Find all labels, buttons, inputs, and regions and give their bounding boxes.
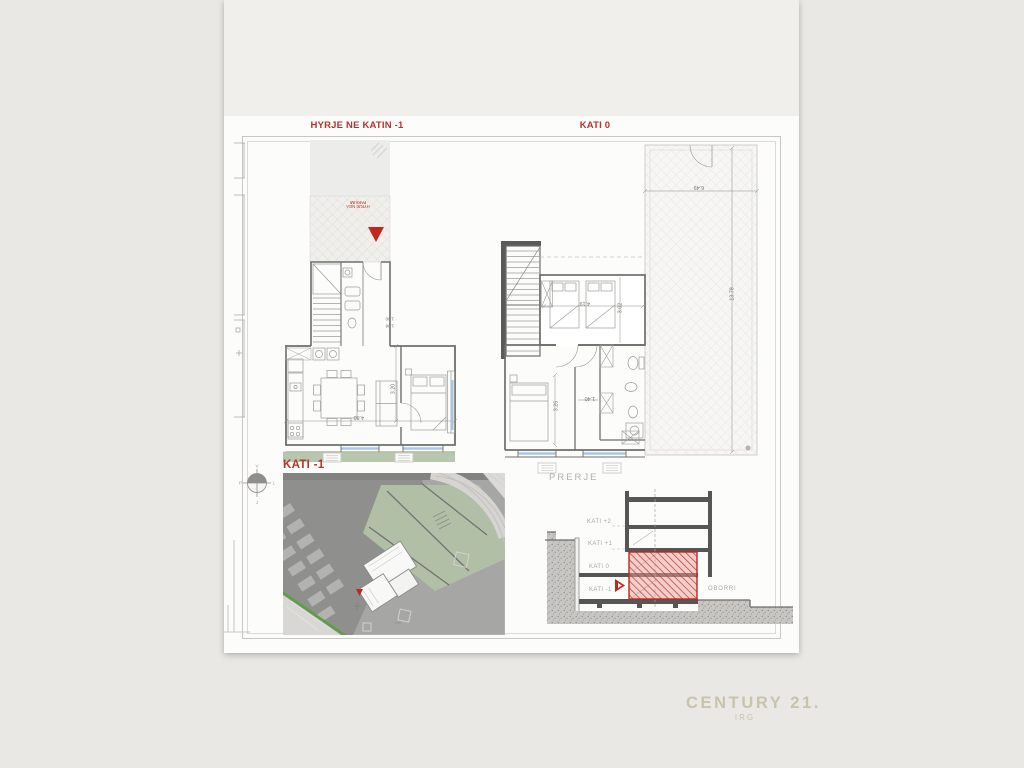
title-ground-floor: KATI 0 (570, 120, 620, 131)
kitchen (288, 359, 303, 439)
laundry-units (313, 348, 339, 360)
highlighted-unit-section (629, 552, 697, 599)
door-arc (363, 262, 381, 280)
dim-left-depth: 3.20 (391, 384, 396, 395)
bed (510, 375, 548, 441)
dim-stair-b: 1.98 (386, 323, 394, 327)
shaft-hatch (600, 345, 639, 444)
drain-icon (746, 446, 751, 451)
compass-icon: V L J P (238, 462, 280, 506)
road-strip (283, 473, 505, 480)
entry-marker-label: HYRJE NGA PARKIMI (343, 199, 373, 208)
terrace (643, 145, 759, 455)
title-basement: KATI -1 (283, 459, 325, 471)
section-level-kati1: KATI +1 (588, 541, 612, 547)
dim-stair-a: 1.90 (386, 316, 394, 320)
dim-hall: 1.40 (585, 395, 596, 400)
page: V L J P (0, 0, 1024, 768)
compass-south: J (256, 500, 258, 505)
title-entry-basement: HYRJE NE KATIN -1 (305, 120, 409, 131)
floor-plan-ground (498, 135, 762, 480)
dim-bedroom2-depth: 3.25 (554, 401, 559, 412)
bathroom-fixtures (343, 268, 360, 328)
lower-rooms (505, 345, 645, 473)
compass-north: V (255, 464, 258, 469)
stairwell (501, 241, 541, 359)
garage-block (310, 140, 390, 196)
sheet-top-margin (224, 0, 799, 116)
section-level-kati0: KATI 0 (589, 564, 609, 570)
dim-terrace-width: 6.49 (694, 184, 705, 189)
floor-plan-basement (283, 135, 473, 467)
title-section: PRERJE (549, 472, 598, 483)
dim-left-width: 4.80 (354, 414, 365, 419)
dim-bedroom-depth: 3.02 (618, 303, 623, 314)
section-yard-label: OBORRI (708, 586, 736, 592)
adjacent-plan-fragment (224, 135, 250, 640)
dim-terrace-length: 13.78 (730, 287, 735, 301)
compass-west: P (239, 481, 242, 486)
corridor-block (311, 262, 390, 346)
bedroom-top (540, 275, 645, 345)
door-arc (575, 345, 597, 367)
dimension-lines (284, 344, 457, 423)
section-drawing (545, 483, 793, 643)
level-lines (612, 526, 625, 549)
bathroom-fixtures (625, 357, 644, 439)
brand-watermark: CENTURY 21. (686, 694, 821, 713)
site-plan (283, 473, 505, 635)
wall-hatch (286, 348, 311, 360)
section-level-katim1: KATI -1 (589, 587, 612, 593)
dim-bedroom-width: 4.19 (580, 300, 591, 305)
compass-east: L (273, 481, 276, 486)
brand-watermark-sub: IRG (686, 713, 804, 722)
door-arc (556, 345, 578, 367)
stairs (313, 264, 341, 342)
living-block (283, 344, 457, 462)
section-level-kati2: KATI +2 (587, 519, 611, 525)
retaining-wall (575, 538, 579, 623)
